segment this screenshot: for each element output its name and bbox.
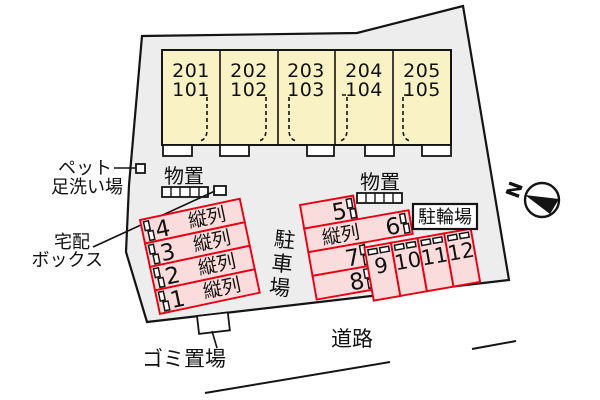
garbage-leader bbox=[212, 331, 217, 348]
unit-number-lower: 102 bbox=[230, 79, 268, 101]
garbage-area bbox=[197, 312, 230, 333]
unit-number-lower: 101 bbox=[172, 79, 210, 101]
wheel-stop bbox=[148, 244, 155, 254]
wheel-stop bbox=[153, 268, 160, 278]
wheel-stop bbox=[158, 277, 165, 287]
storage-shed-right-box bbox=[357, 193, 402, 203]
wheel-stop bbox=[350, 209, 356, 219]
entrance-step bbox=[307, 145, 334, 156]
wheel-stop bbox=[163, 301, 170, 311]
space-number: 12 bbox=[446, 238, 476, 266]
wheel-stop bbox=[346, 199, 352, 209]
site-plan: 201 101 202 102 203 103 204 104 205 105 … bbox=[0, 0, 600, 400]
unit-number-lower: 105 bbox=[403, 79, 441, 101]
pet-wash-station bbox=[136, 164, 145, 173]
bicycle-parking-label: 駐輪場 bbox=[418, 207, 472, 228]
space-number: 11 bbox=[419, 242, 449, 270]
road-edge-line bbox=[472, 341, 516, 349]
delivery-box bbox=[214, 186, 226, 195]
unit-number-lower: 104 bbox=[345, 79, 383, 101]
entrance-step bbox=[220, 145, 249, 156]
storage-right-label: 物置 bbox=[360, 170, 400, 194]
north-arrow-icon: N bbox=[502, 179, 559, 217]
road-label: 道路 bbox=[331, 327, 373, 351]
garbage-label: ゴミ置場 bbox=[142, 347, 226, 371]
pet-wash-label-line2: 足洗い場 bbox=[51, 177, 123, 198]
road-edge-line bbox=[205, 362, 390, 393]
garbage-box bbox=[197, 312, 230, 333]
storage-left-label: 物置 bbox=[164, 164, 204, 188]
building: 201 101 202 102 203 103 204 104 205 105 bbox=[162, 50, 451, 156]
site-plan-svg: 201 101 202 102 203 103 204 104 205 105 … bbox=[0, 0, 600, 400]
wheel-stop bbox=[380, 246, 390, 252]
wheel-stop bbox=[403, 223, 409, 233]
storage-shed-left-box bbox=[162, 187, 208, 197]
pet-wash-label-line1: ペット bbox=[58, 158, 112, 179]
bicycle-parking: 駐輪場 bbox=[413, 204, 477, 229]
storage-shed-right: 物置 bbox=[357, 170, 402, 203]
wheel-stop bbox=[153, 254, 160, 264]
space-number: 10 bbox=[393, 247, 423, 275]
wheel-stop bbox=[148, 231, 155, 241]
delivery-box-label-line2: ボックス bbox=[32, 250, 103, 271]
entrance-step bbox=[365, 145, 394, 156]
wheel-stop bbox=[158, 291, 165, 301]
unit-number-lower: 103 bbox=[287, 79, 325, 101]
storage-shed-left: 物置 bbox=[162, 164, 208, 197]
entrance-step bbox=[163, 145, 192, 156]
entrance-step bbox=[422, 145, 451, 156]
wheel-stop bbox=[400, 213, 406, 223]
wheel-stop bbox=[143, 221, 150, 231]
